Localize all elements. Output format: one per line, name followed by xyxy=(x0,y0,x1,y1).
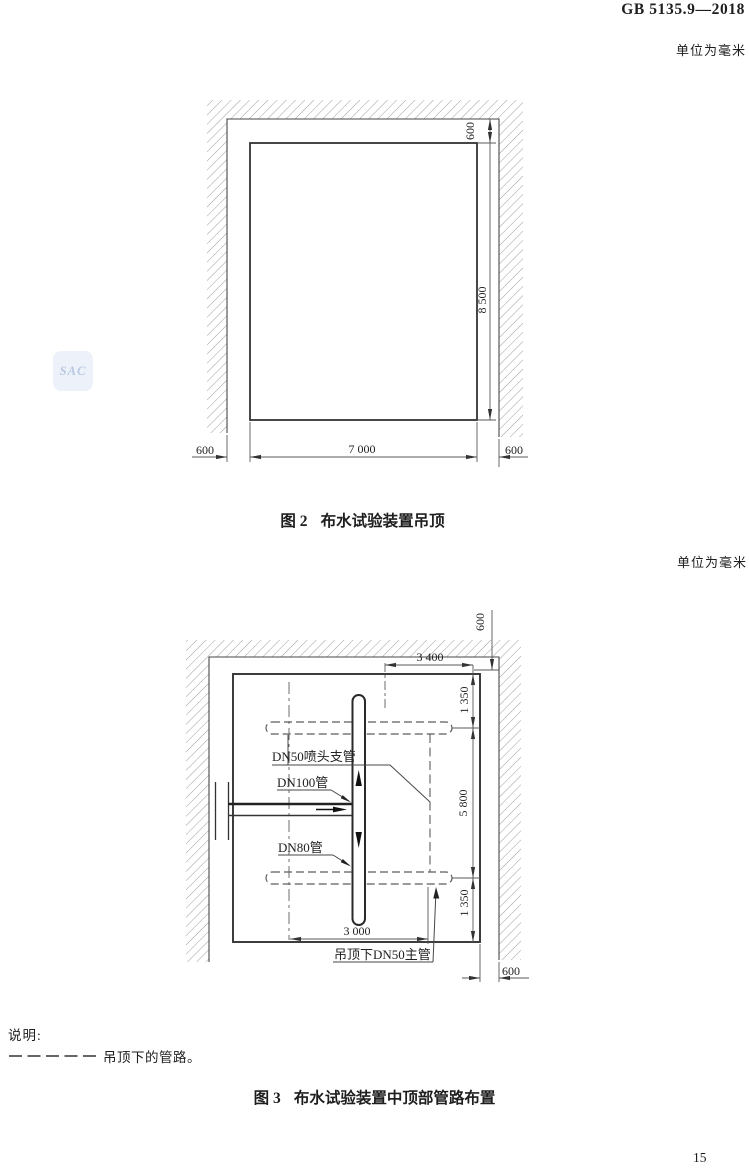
fig3-dim-top-spacing: 1 350 xyxy=(457,687,471,714)
fig3-dim-ceiling-top-offset: 600 xyxy=(473,613,487,631)
fig2-dim-bottom-right-offset: 600 xyxy=(505,443,523,457)
fig2-dim-ceiling-top-offset: 600 xyxy=(463,122,477,140)
legend-row: 吊顶下的管路。 xyxy=(8,1046,201,1066)
fig2-wall-hatching xyxy=(207,100,523,437)
figure2-caption-title: 布水试验装置吊顶 xyxy=(321,513,445,530)
fig2-dimension-arrows xyxy=(216,119,510,459)
figure3-caption-number: 图 3 xyxy=(254,1090,281,1107)
fig3-dimension-lines xyxy=(290,610,529,982)
legend-dashed-meaning: 吊顶下的管路。 xyxy=(103,1046,201,1066)
sac-watermark-text: SAC xyxy=(60,364,87,379)
fig3-dim-branch-spacing: 5 800 xyxy=(456,790,470,817)
fig2-dim-bottom-left-offset: 600 xyxy=(196,443,214,457)
fig2-dim-room-height: 8 500 xyxy=(475,287,489,314)
fig3-riser-pipe xyxy=(353,695,366,925)
fig3-label-branch-pipe: DN50喷头支管 xyxy=(272,749,356,764)
fig2-dim-room-width: 7 000 xyxy=(349,442,376,456)
figure2-caption: 图 2布水试验装置吊顶 xyxy=(0,509,737,531)
fig3-dim-branch-to-wall: 3 400 xyxy=(417,650,444,664)
figure3-caption: 图 3布水试验装置中顶部管路布置 xyxy=(0,1086,749,1108)
figure2-caption-number: 图 2 xyxy=(280,513,307,530)
legend-heading: 说明: xyxy=(8,1024,42,1044)
units-note-top: 单位为毫米 xyxy=(676,40,746,59)
page-number: 15 xyxy=(693,1150,707,1166)
fig2-wall-inner-face xyxy=(227,119,499,437)
fig3-dimension-arrows xyxy=(290,659,510,980)
sac-watermark: SAC xyxy=(53,351,93,391)
fig3-dim-main-run: 3 000 xyxy=(344,924,371,938)
fig3-label-dn80-pipe: DN80管 xyxy=(278,840,323,855)
fig3-dim-bottom-spacing: 1 350 xyxy=(457,890,471,917)
figure3-drawing: 600 3 400 1 350 5 800 1 350 3 000 600 DN… xyxy=(180,600,545,995)
fig3-dim-right-offset: 600 xyxy=(502,964,520,978)
dashed-line-symbol xyxy=(8,1052,98,1060)
fig2-ceiling-outline xyxy=(250,143,477,420)
standard-code: GB 5135.9—2018 xyxy=(621,1,745,19)
fig3-label-dn100-pipe: DN100管 xyxy=(277,775,328,790)
units-note-middle: 单位为毫米 xyxy=(677,552,747,571)
fig3-label-main-pipe: 吊顶下DN50主管 xyxy=(334,947,431,962)
figure3-caption-title: 布水试验装置中顶部管路布置 xyxy=(294,1090,496,1107)
fig3-centerlines xyxy=(289,663,385,940)
document-page: GB 5135.9—2018 单位为毫米 SAC xyxy=(0,0,749,1168)
figure2-drawing: 600 8 500 600 7 000 600 xyxy=(180,95,545,475)
